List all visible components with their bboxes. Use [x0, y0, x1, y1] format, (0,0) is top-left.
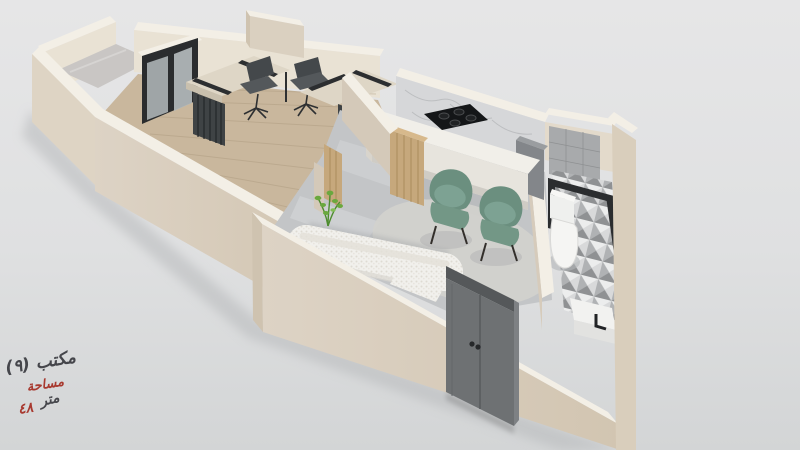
east-wall: [612, 124, 636, 450]
window-glass-left: [147, 56, 168, 120]
kitchen-wood-cabinet: [390, 126, 428, 206]
wood-door-open: [324, 144, 342, 208]
stub-side: [246, 10, 250, 48]
door-handle-left: [469, 341, 474, 346]
bathroom-north-wall-top: [545, 108, 618, 126]
area-value: ٤٨: [17, 399, 35, 419]
entry-door-edge: [514, 300, 519, 426]
window-glass-right: [174, 47, 192, 111]
front-wall-west-sliver: [252, 212, 263, 332]
door-handle-right: [475, 344, 480, 349]
area-unit: متر: [38, 389, 61, 410]
floorplan-3d-render: مكتب (٩) مساحة ٤٨ متر: [0, 0, 800, 450]
